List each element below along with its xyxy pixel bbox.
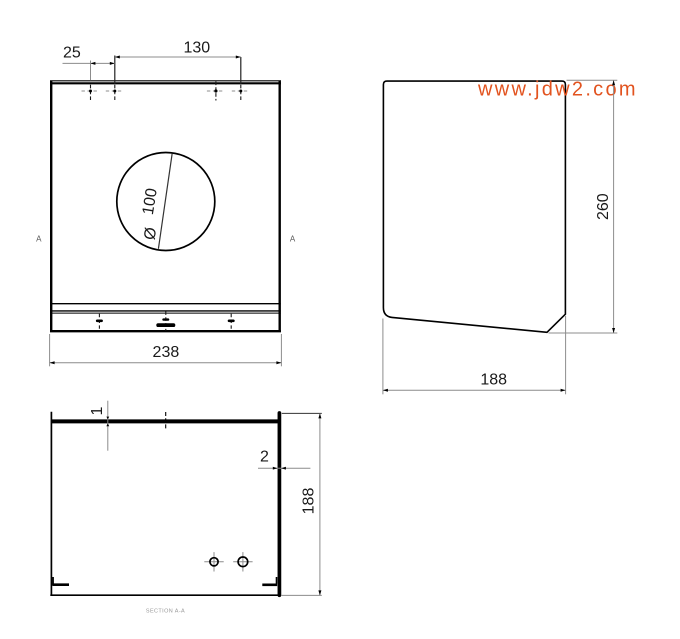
svg-text:A: A <box>290 235 296 244</box>
svg-text:260: 260 <box>595 193 612 220</box>
svg-text:188: 188 <box>301 488 318 515</box>
svg-text:1: 1 <box>89 406 106 415</box>
svg-text:25: 25 <box>63 45 81 62</box>
svg-text:A: A <box>36 235 42 244</box>
svg-text:SECTION A-A: SECTION A-A <box>146 609 185 615</box>
svg-text:238: 238 <box>153 344 180 361</box>
svg-text:188: 188 <box>480 371 507 388</box>
svg-text:2: 2 <box>260 449 269 466</box>
svg-text:Ø: Ø <box>141 226 160 241</box>
svg-text:130: 130 <box>183 40 210 57</box>
